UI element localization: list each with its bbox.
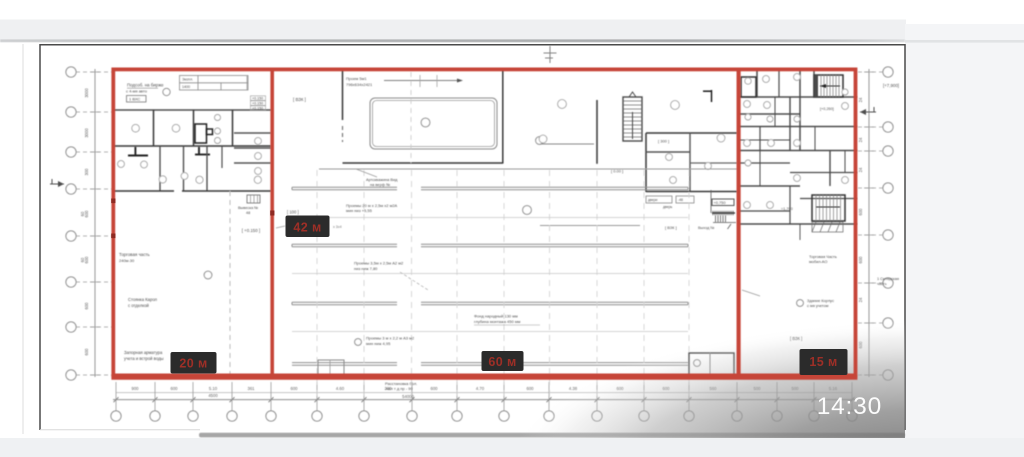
svg-text:3000: 3000 [84, 88, 89, 98]
svg-text:361: 361 [248, 386, 256, 391]
svg-text:с отделкой: с отделкой [128, 303, 150, 308]
svg-text:20 м: 20 м [179, 357, 207, 371]
svg-text:[ ВЗК ]: [ ВЗК ] [665, 225, 677, 230]
svg-text:Торговая часть: Торговая часть [119, 252, 150, 257]
svg-text:1400: 1400 [182, 85, 190, 89]
svg-text:Подсоб. на бирже: Подсоб. на бирже [127, 83, 164, 88]
svg-text:Проемы 3,5м х 2,5м А2 м2: Проемы 3,5м х 2,5м А2 м2 [354, 261, 404, 266]
svg-text:Фонд народный 130 мм: Фонд народный 130 мм [474, 314, 518, 319]
svg-text:+0,750: +0,750 [714, 200, 727, 205]
svg-text:мин низ +5,55: мин низ +5,55 [346, 208, 373, 213]
svg-text:600: 600 [431, 386, 439, 391]
svg-text:[+7,900]: [+7,900] [883, 83, 899, 88]
svg-text:900: 900 [132, 386, 140, 391]
svg-text:600: 600 [84, 348, 89, 356]
svg-text:мин ниж 4,95: мин ниж 4,95 [366, 341, 391, 346]
svg-text:[ 100 ]: [ 100 ] [287, 210, 299, 215]
svg-text:Выход №: Выход № [698, 226, 715, 230]
svg-text:мобил-АО: мобил-АО [809, 259, 827, 264]
svg-text:Вывеска №: Вывеска № [238, 206, 258, 210]
svg-text:+0.150: +0.150 [252, 97, 263, 101]
svg-text:24: 24 [858, 137, 863, 142]
svg-text:1 Складская: 1 Складская [877, 277, 899, 281]
svg-text:600: 600 [291, 386, 299, 391]
svg-text:[ +0.150 ]: [ +0.150 ] [242, 228, 260, 233]
svg-text:[+0,260]: [+0,260] [820, 107, 834, 111]
svg-text:600: 600 [171, 386, 179, 391]
svg-text:учета и встрой воды: учета и встрой воды [124, 356, 164, 361]
svg-text:Запорная арматура: Запорная арматура [124, 350, 163, 355]
svg-text:двери: двери [648, 198, 658, 202]
svg-text:с 4-мя авто: с 4-мя авто [126, 89, 148, 94]
svg-text:796х634х2421: 796х634х2421 [346, 82, 373, 87]
svg-text:3000: 3000 [84, 128, 89, 138]
svg-text:+0.150: +0.150 [252, 102, 263, 106]
svg-text:дверь: дверь [663, 205, 673, 209]
svg-text:60: 60 [80, 211, 85, 216]
svg-text:[ 300 ]: [ 300 ] [658, 139, 669, 144]
svg-text:600: 600 [858, 256, 863, 264]
svg-text:600: 600 [84, 302, 89, 310]
svg-text:240м-30: 240м-30 [119, 258, 135, 263]
svg-text:х 3х4: х 3х4 [333, 225, 342, 229]
svg-text:4.70: 4.70 [476, 386, 485, 391]
svg-text:глубина монтажа 450 мм: глубина монтажа 450 мм [474, 319, 521, 324]
svg-text:=1,700: =1,700 [781, 207, 793, 211]
svg-text:на верф №: на верф № [370, 182, 390, 187]
svg-text:Проемы 3 м х 2,2 м А3 м2: Проемы 3 м х 2,2 м А3 м2 [366, 336, 415, 341]
svg-text:54000: 54000 [402, 394, 414, 399]
svg-text:Проем 5м1: Проем 5м1 [346, 76, 367, 81]
svg-text:24: 24 [858, 97, 863, 102]
svg-text:[ ВЗК ]: [ ВЗК ] [293, 97, 306, 102]
svg-text:Экспл.: Экспл. [182, 78, 193, 82]
svg-text:42 м: 42 м [293, 221, 321, 235]
svg-text:15 м: 15 м [809, 355, 837, 369]
svg-text:часть: часть [877, 282, 887, 286]
svg-text:Стоянка Карол: Стоянка Карол [128, 297, 158, 302]
svg-text:-чел т д пр - 90: -чел т д пр - 90 [385, 386, 414, 391]
svg-text:4500: 4500 [208, 393, 218, 398]
svg-text:24: 24 [858, 167, 863, 172]
svg-text:низ ниж 7,80: низ ниж 7,80 [354, 266, 378, 271]
svg-text:60: 60 [80, 257, 85, 262]
svg-text:1 ВХС: 1 ВХС [129, 97, 140, 102]
svg-text:600: 600 [858, 208, 863, 216]
svg-text:-48: -48 [678, 198, 683, 202]
svg-text:14:30: 14:30 [817, 393, 882, 420]
svg-text:+0.150: +0.150 [252, 107, 263, 111]
svg-text:5.10: 5.10 [209, 386, 218, 391]
svg-text:300: 300 [84, 168, 89, 176]
svg-text:48: 48 [246, 211, 250, 215]
svg-text:4.60: 4.60 [336, 386, 345, 391]
svg-text:60 м: 60 м [488, 355, 516, 369]
